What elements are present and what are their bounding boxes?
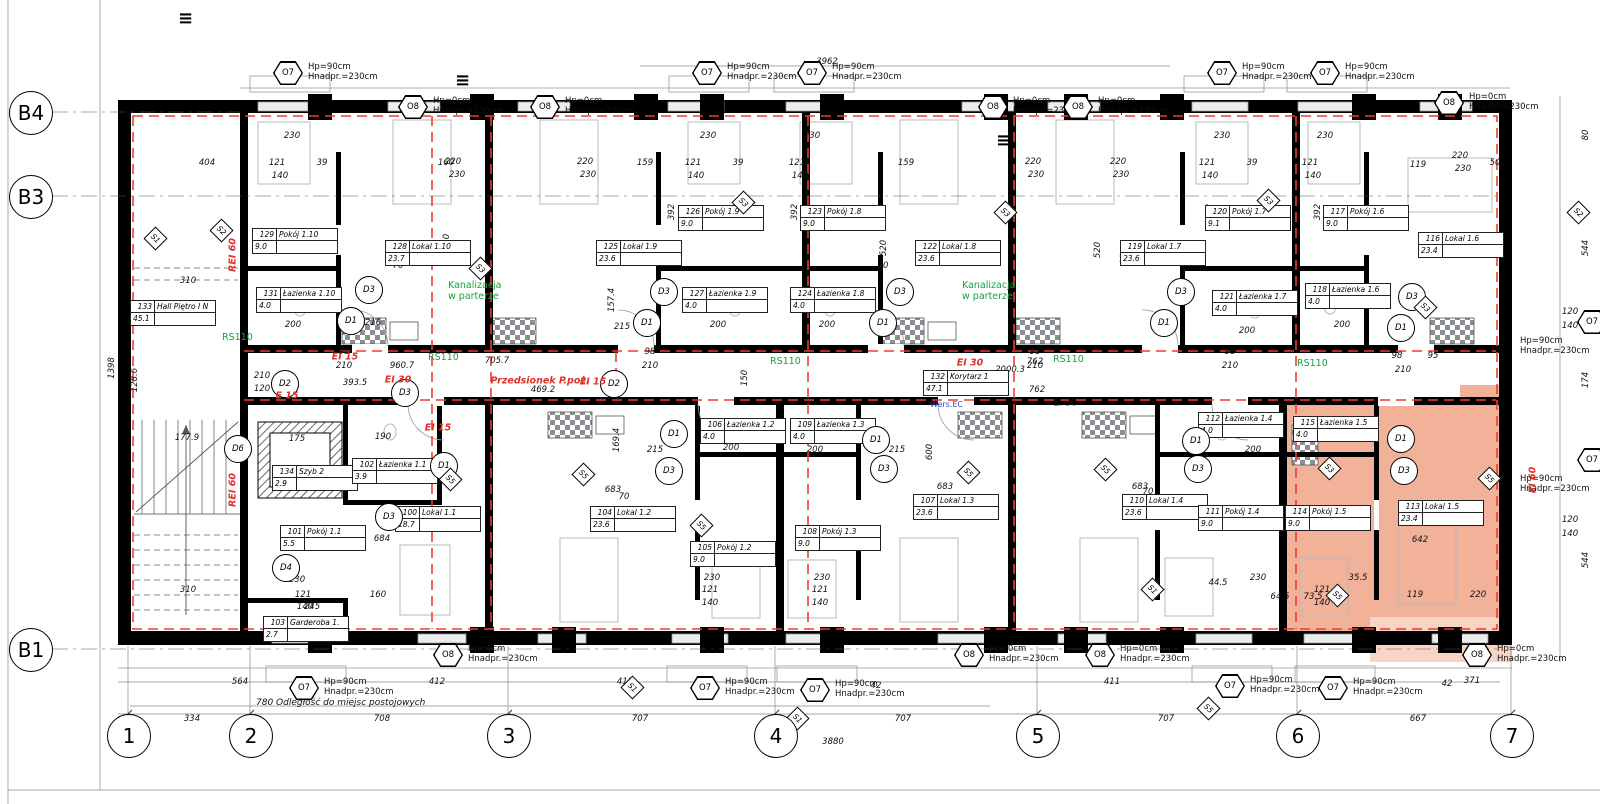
dimension-text: 707 xyxy=(895,714,911,724)
window-note-line: Hnadpr.=230cm xyxy=(989,654,1059,664)
room-label-blank xyxy=(1230,218,1290,230)
room-name: Łazienka 1.5 xyxy=(1318,417,1378,429)
detail-marker-circle: D1 xyxy=(862,426,890,454)
room-area: 9.0 m² xyxy=(253,241,277,253)
dimension-text: 684 xyxy=(374,534,390,544)
axis-bubble-1: 1 xyxy=(107,714,151,758)
axis-bubble-5: 5 xyxy=(1016,714,1060,758)
room-area: 9.0 m² xyxy=(801,218,825,230)
fire-rating-note-black: EI 30 xyxy=(1053,398,1077,409)
window-height-note: Hp=90cmHnadpr.=230cm xyxy=(725,677,795,697)
window-height-note: Hp=90cmHnadpr.=230cm xyxy=(727,62,797,82)
dimension-text: 140 xyxy=(702,598,718,608)
room-label-blank xyxy=(940,253,1000,265)
room-area: 9.0 m² xyxy=(1286,518,1310,530)
room-label-blank xyxy=(288,629,348,641)
dimension-text: 140 xyxy=(272,171,288,181)
dimension-text: 520 xyxy=(879,240,889,256)
dimension-text: 220 xyxy=(1110,157,1126,167)
room-number: 102 xyxy=(353,459,377,471)
dimension-text: 667 xyxy=(1410,714,1426,724)
dimension-text: 98 xyxy=(1225,347,1236,357)
room-name: Pokój 1.7 xyxy=(1230,206,1290,218)
room-area: 9.0 m² xyxy=(796,538,820,550)
dimension-text: 200 xyxy=(285,320,301,330)
room-number: 131 xyxy=(257,288,281,300)
window-height-note: Hp=0cmHnadpr.=230cm xyxy=(1120,644,1190,664)
detail-marker-circle: D3 xyxy=(870,455,898,483)
dimension-text: 520 xyxy=(1093,242,1103,258)
room-label-blank xyxy=(1330,296,1390,308)
room-area: 23.6 m² xyxy=(591,519,615,531)
window-marker-label: O8 xyxy=(980,97,1007,118)
room-label: 117Pokój 1.69.0 m² xyxy=(1323,205,1409,231)
detail-marker-diamond: S3 xyxy=(468,256,492,280)
dimension-text: 215 xyxy=(614,322,630,332)
dimension-text: 371 xyxy=(1464,676,1480,686)
dimension-text: 230 xyxy=(1250,573,1266,583)
window-note-line: Hp=90cm xyxy=(1345,62,1415,72)
room-label: 126Pokój 1.99.0 m² xyxy=(678,205,764,231)
axis-bubble-b4: B4 xyxy=(9,91,53,135)
sanitary-note: RS110 xyxy=(1297,358,1328,369)
room-number: 122 xyxy=(916,241,940,253)
window-marker-label: O8 xyxy=(1065,97,1092,118)
dimension-text: 50 xyxy=(1490,158,1501,168)
dimension-text: 140 xyxy=(1314,598,1330,608)
axis-bubble-4: 4 xyxy=(754,714,798,758)
diamond-label: S5 xyxy=(1331,589,1344,602)
diamond-label: S5 xyxy=(962,466,975,479)
room-label: 119Lokal 1.723.6 m² xyxy=(1120,240,1206,266)
room-label-blank xyxy=(1223,518,1283,530)
window-marker-label: O7 xyxy=(799,63,826,84)
window-note-line: Hnadpr.=230cm xyxy=(835,689,905,699)
room-label-blank xyxy=(410,253,470,265)
room-name: Lokal 1.9 xyxy=(621,241,681,253)
dimension-text: 39 xyxy=(317,158,328,168)
room-label: 112Łazienka 1.44.0 m² xyxy=(1198,412,1284,438)
room-name: Pokój 1.9 xyxy=(703,206,763,218)
fire-rating-note: EI 30 xyxy=(957,358,984,369)
dimension-text: 215 xyxy=(889,445,905,455)
detail-marker-circle: D1 xyxy=(337,307,365,335)
window-marker-label: O7 xyxy=(291,678,318,699)
window-note-line: Hp=90cm xyxy=(1520,336,1590,346)
dimension-text: 121 xyxy=(812,585,828,595)
room-area: 4.0 m² xyxy=(1306,296,1330,308)
dimension-text: 200 xyxy=(723,443,739,453)
window-marker-label: O7 xyxy=(694,63,721,84)
room-label: 127Łazienka 1.94.0 m² xyxy=(682,287,768,313)
window-marker-o7-icon: O7 xyxy=(690,676,720,700)
dimension-text: 175 xyxy=(289,434,305,444)
dimension-text: 140 xyxy=(792,171,808,181)
diamond-label: S3 xyxy=(1419,301,1432,314)
room-name: Pokój 1.10 xyxy=(277,229,337,241)
sanitary-note: RS110 xyxy=(222,332,253,343)
window-note-line: Hnadpr.=230cm xyxy=(468,654,538,664)
room-label-blank xyxy=(1310,518,1370,530)
room-number: 105 xyxy=(691,542,715,554)
room-label-blank xyxy=(938,507,998,519)
fire-rating-note: EI 15 xyxy=(425,423,452,434)
dimension-text: 210 xyxy=(1395,365,1411,375)
dimension-text: 310 xyxy=(180,276,196,286)
window-marker-o7-icon: O7 xyxy=(1318,676,1348,700)
room-area: 23.6 m² xyxy=(1121,253,1145,265)
window-marker-o8-icon: O8 xyxy=(398,95,428,119)
window-marker-label: O8 xyxy=(956,645,983,666)
sanitary-note: RS110 xyxy=(1053,354,1084,365)
window-note-line: Hp=0cm xyxy=(1098,96,1168,106)
window-marker-o8-icon: O8 xyxy=(433,643,463,667)
room-label-blank xyxy=(155,313,215,325)
room-number: 119 xyxy=(1121,241,1145,253)
room-number: 109 xyxy=(791,419,815,431)
detail-marker-diamond: S3 xyxy=(1317,456,1341,480)
detail-marker-circle: D3 xyxy=(1390,457,1418,485)
room-label: 122Lokal 1.823.6 m² xyxy=(915,240,1001,266)
detail-marker-diamond: S5 xyxy=(1093,457,1117,481)
detail-marker-circle: D1 xyxy=(633,309,661,337)
room-name: Szyb 2 xyxy=(297,466,357,478)
axis-bubble-7: 7 xyxy=(1490,714,1534,758)
version-note: Wers.EC xyxy=(930,400,963,409)
window-marker-label: O7 xyxy=(1579,312,1600,333)
fire-rating-note: Przedsionek P.poż. xyxy=(491,376,590,387)
window-height-note: Hp=90cmHnadpr.=230cm xyxy=(324,677,394,697)
dimension-text: 411 xyxy=(1104,677,1120,687)
sanitary-note: Kanalizacja w parterze xyxy=(448,280,502,302)
sanitary-note: Kanalizacja w parterze xyxy=(962,280,1016,302)
dimension-text: 169.4 xyxy=(612,428,622,452)
dimension-text: 544 xyxy=(1581,240,1591,256)
labels-layer: 133Hall Piętro I N45.1 m²129Pokój 1.109.… xyxy=(0,0,1600,804)
room-area: 4.0 m² xyxy=(701,431,725,443)
room-number: 117 xyxy=(1324,206,1348,218)
dimension-text: 121 xyxy=(1199,158,1215,168)
window-note-line: Hp=90cm xyxy=(835,679,905,689)
window-note-line: Hp=90cm xyxy=(832,62,902,72)
detail-marker-circle: D3 xyxy=(355,276,383,304)
window-note-line: Hnadpr.=230cm xyxy=(308,72,378,82)
dimension-text: 42 xyxy=(1442,679,1453,689)
room-number: 120 xyxy=(1206,206,1230,218)
dimension-text: 220 xyxy=(1470,590,1486,600)
dimension-text: 404 xyxy=(199,158,215,168)
dimension-text: 564 xyxy=(232,677,248,687)
diamond-label: S2 xyxy=(1572,206,1585,219)
window-marker-o7-icon: O7 xyxy=(1215,674,1245,698)
room-area: 4.0 m² xyxy=(791,431,815,443)
dimension-text: 310 xyxy=(180,585,196,595)
dimension-text: 707 xyxy=(1158,714,1174,724)
room-label-blank xyxy=(725,431,785,443)
dimension-text: 200 xyxy=(807,445,823,455)
window-marker-label: O7 xyxy=(1217,676,1244,697)
dimension-text: 140 xyxy=(1305,171,1321,181)
window-marker-o7-icon: O7 xyxy=(273,61,303,85)
diamond-label: S5 xyxy=(1099,463,1112,476)
dimension-text: 230 xyxy=(704,573,720,583)
room-number: 101 xyxy=(281,526,305,538)
diamond-label: S3 xyxy=(474,262,487,275)
room-number: 115 xyxy=(1294,417,1318,429)
room-label: 121Łazienka 1.74.0 m² xyxy=(1212,290,1298,316)
dimension-text: 393.5 xyxy=(343,378,367,388)
room-number: 116 xyxy=(1419,233,1443,245)
room-label-blank xyxy=(820,538,880,550)
room-label: 123Pokój 1.89.0 m² xyxy=(800,205,886,231)
sanitary-note: RS110 xyxy=(770,356,801,367)
room-number: 121 xyxy=(1213,291,1237,303)
sanitary-note: RS110 xyxy=(428,352,459,363)
room-number: 108 xyxy=(796,526,820,538)
room-label-blank xyxy=(1145,253,1205,265)
dimension-text: 200 xyxy=(710,320,726,330)
window-marker-label: O7 xyxy=(1320,678,1347,699)
room-label-blank xyxy=(1223,425,1283,437)
room-label: 124Łazienka 1.84.0 m² xyxy=(790,287,876,313)
room-area: 9.0 m² xyxy=(1199,518,1223,530)
dimension-text: 44.5 xyxy=(1209,578,1228,588)
dimension-text: 35.5 xyxy=(1349,573,1368,583)
dimension-text: 140 xyxy=(688,171,704,181)
window-marker-label: O8 xyxy=(1464,645,1491,666)
window-height-note: Hp=0cmHnadpr.=230cm xyxy=(1497,644,1567,664)
window-height-note: Hp=0cmHnadpr.=230cm xyxy=(468,644,538,664)
window-marker-o7-icon: O7 xyxy=(1577,310,1600,334)
parking-distance-note: 780 Odległość do miejsc postojowych xyxy=(256,698,425,708)
detail-marker-circle: D1 xyxy=(1387,425,1415,453)
dimension-text: 121 xyxy=(702,585,718,595)
dimension-text: 230 xyxy=(1455,164,1471,174)
window-note-line: Hp=90cm xyxy=(1353,677,1423,687)
dimension-text: 230 xyxy=(814,573,830,583)
dimension-text: 683 xyxy=(937,482,953,492)
window-note-line: Hp=0cm xyxy=(433,96,503,106)
room-name: Pokój 1.5 xyxy=(1310,506,1370,518)
window-note-line: Hnadpr.=230cm xyxy=(1469,102,1539,112)
dimension-text: 220 xyxy=(1025,157,1041,167)
room-name: Hall Piętro I N xyxy=(155,301,215,313)
dimension-text: 95 xyxy=(1428,351,1439,361)
window-marker-label: O8 xyxy=(1436,93,1463,114)
dimension-text: 392 xyxy=(667,204,677,220)
room-number: 114 xyxy=(1286,506,1310,518)
room-label-blank xyxy=(1348,218,1408,230)
window-marker-label: O8 xyxy=(532,97,559,118)
window-note-line: Hnadpr.=230cm xyxy=(1098,106,1168,116)
room-label-blank xyxy=(1443,245,1503,257)
window-height-note: Hp=90cmHnadpr.=230cm xyxy=(308,62,378,82)
room-label: 102Łazienka 1.13.9 m² xyxy=(352,458,438,484)
window-note-line: Hnadpr.=230cm xyxy=(1242,72,1312,82)
window-marker-o7-icon: O7 xyxy=(1207,61,1237,85)
dimension-text: 190 xyxy=(375,432,391,442)
dimension-text: 230 xyxy=(449,170,465,180)
room-area: 9.0 m² xyxy=(1324,218,1348,230)
dimension-text: 960.7 xyxy=(390,361,414,371)
room-label: 134Szyb 22.9 m² xyxy=(272,465,358,491)
window-marker-o8-icon: O8 xyxy=(530,95,560,119)
room-number: 113 xyxy=(1399,501,1423,513)
detail-marker-circle: D3 xyxy=(650,278,678,306)
room-label-blank xyxy=(707,300,767,312)
detail-marker-diamond: S5 xyxy=(571,462,595,486)
room-area: 4.0 m² xyxy=(1213,303,1237,315)
window-marker-label: O7 xyxy=(275,63,302,84)
room-name: Pokój 1.2 xyxy=(715,542,775,554)
detail-marker-circle: D1 xyxy=(869,309,897,337)
dimension-text: 230 xyxy=(1214,131,1230,141)
room-label: 133Hall Piętro I N45.1 m² xyxy=(130,300,216,326)
window-note-line: Hp=90cm xyxy=(727,62,797,72)
detail-marker-circle: D3 xyxy=(1184,455,1212,483)
fire-rating-note: REI 60 xyxy=(228,238,239,272)
fire-rating-note: REI 60 xyxy=(228,473,239,507)
dimension-text: 140 xyxy=(1202,171,1218,181)
fire-rating-note: E 15 xyxy=(275,391,298,402)
dimension-text: 159 xyxy=(637,158,653,168)
room-label-blank xyxy=(1318,429,1378,441)
diamond-label: S5 xyxy=(695,519,708,532)
room-name: Pokój 1.8 xyxy=(825,206,885,218)
window-marker-o7-icon: O7 xyxy=(1577,448,1600,472)
room-label-blank xyxy=(277,241,337,253)
diamond-label: S3 xyxy=(737,196,750,209)
window-height-note: Hp=90cmHnadpr.=230cm xyxy=(1353,677,1423,697)
room-number: 107 xyxy=(914,495,938,507)
window-note-line: Hp=90cm xyxy=(1242,62,1312,72)
room-label-blank xyxy=(305,538,365,550)
window-marker-label: O7 xyxy=(1312,63,1339,84)
room-label: 128Lokal 1.1023.7 m² xyxy=(385,240,471,266)
window-note-line: Hnadpr.=230cm xyxy=(832,72,902,82)
room-label: 104Lokal 1.223.6 m² xyxy=(590,506,676,532)
room-label-blank xyxy=(615,519,675,531)
room-name: Garderoba 1. xyxy=(288,617,348,629)
detail-marker-circle: D4 xyxy=(272,554,300,582)
detail-marker-circle: D1 xyxy=(1387,314,1415,342)
room-label: 107Lokal 1.323.6 m² xyxy=(913,494,999,520)
dimension-text: 216 xyxy=(365,318,381,328)
room-number: 127 xyxy=(683,288,707,300)
detail-marker-circle: D1 xyxy=(1150,309,1178,337)
room-name: Pokój 1.3 xyxy=(820,526,880,538)
window-note-line: Hp=0cm xyxy=(1120,644,1190,654)
dimension-text: 683 xyxy=(1132,482,1148,492)
window-note-line: Hnadpr.=230cm xyxy=(1250,685,1320,695)
dimension-text: 120 xyxy=(254,384,270,394)
window-note-line: Hp=90cm xyxy=(308,62,378,72)
window-note-line: Hnadpr.=230cm xyxy=(1345,72,1415,82)
room-number: 125 xyxy=(597,241,621,253)
dimension-text: 220 xyxy=(1452,151,1468,161)
fire-rating-note: EI 15 xyxy=(332,352,359,363)
window-note-line: Hnadpr.=230cm xyxy=(725,687,795,697)
detail-marker-circle: D3 xyxy=(1167,278,1195,306)
dimension-text: 121 xyxy=(789,158,805,168)
window-marker-label: O8 xyxy=(435,645,462,666)
diamond-label: S1 xyxy=(626,681,639,694)
dimension-text: 121 xyxy=(685,158,701,168)
room-number: 128 xyxy=(386,241,410,253)
room-name: Lokal 1.8 xyxy=(940,241,1000,253)
room-area: 23.6 m² xyxy=(1123,507,1147,519)
window-height-note: Hp=0cmHnadpr.=230cm xyxy=(1469,92,1539,112)
window-marker-o8-icon: O8 xyxy=(978,95,1008,119)
room-name: Łazienka 1.8 xyxy=(815,288,875,300)
room-name: Pokój 1.4 xyxy=(1223,506,1283,518)
dimension-text: 140 xyxy=(297,602,313,612)
dimension-text: 683 xyxy=(605,485,621,495)
detail-marker-circle: D1 xyxy=(1182,427,1210,455)
room-name: Łazienka 1.6 xyxy=(1330,284,1390,296)
room-number: 111 xyxy=(1199,506,1223,518)
dimension-text: 160 xyxy=(370,590,386,600)
window-marker-o7-icon: O7 xyxy=(1310,61,1340,85)
fire-rating-note: EI 15 xyxy=(580,377,607,388)
window-marker-o8-icon: O8 xyxy=(1462,643,1492,667)
room-number: 124 xyxy=(791,288,815,300)
dimension-text: 210 xyxy=(336,361,352,371)
window-height-note: Hp=0cmHnadpr.=230cm xyxy=(1098,96,1168,116)
axis-bubble-6: 6 xyxy=(1276,714,1320,758)
window-note-line: Hp=0cm xyxy=(989,644,1059,654)
room-area: 9.0 m² xyxy=(679,218,703,230)
diamond-label: S5 xyxy=(444,473,457,486)
dimension-text: 39 xyxy=(733,158,744,168)
room-label-blank xyxy=(281,300,341,312)
window-note-line: Hnadpr.=230cm xyxy=(1120,654,1190,664)
room-number: 104 xyxy=(591,507,615,519)
room-label: 115Łazienka 1.54.0 m² xyxy=(1293,416,1379,442)
detail-marker-circle: D1 xyxy=(660,420,688,448)
room-area: 23.7 m² xyxy=(386,253,410,265)
room-number: 123 xyxy=(801,206,825,218)
room-label-blank xyxy=(377,471,437,483)
dimension-text: 39 xyxy=(1247,158,1258,168)
dimension-text: 334 xyxy=(184,714,200,724)
detail-marker-diamond: S1 xyxy=(143,226,167,250)
dimension-text: 230 xyxy=(700,131,716,141)
dimension-text: 80 xyxy=(1581,130,1591,141)
dimension-text: 220 xyxy=(577,157,593,167)
detail-marker-diamond: S5 xyxy=(689,513,713,537)
dimension-text: 210 xyxy=(642,361,658,371)
room-area: 23.6 m² xyxy=(914,507,938,519)
room-number: 134 xyxy=(273,466,297,478)
fire-rating-note: EI 30 xyxy=(385,375,412,386)
dimension-text: 174 xyxy=(1581,372,1591,388)
room-label-blank xyxy=(621,253,681,265)
dimension-text: 708 xyxy=(374,714,390,724)
room-label: 120Pokój 1.79.1 m² xyxy=(1205,205,1291,231)
window-height-note: Hp=90cmHnadpr.=230cm xyxy=(1242,62,1312,82)
room-number: 106 xyxy=(701,419,725,431)
window-marker-o7-icon: O7 xyxy=(692,61,722,85)
room-label: 116Lokal 1.623.4 m² xyxy=(1418,232,1504,258)
window-marker-label: O7 xyxy=(1209,63,1236,84)
room-area: 23.6 m² xyxy=(597,253,621,265)
room-name: Lokal 1.1 xyxy=(420,507,480,519)
window-note-line: Hnadpr.=230cm xyxy=(433,106,503,116)
axis-bubble-b1: B1 xyxy=(9,628,53,672)
dimension-text: 119 xyxy=(1410,160,1426,170)
room-area: 45.1 m² xyxy=(131,313,155,325)
